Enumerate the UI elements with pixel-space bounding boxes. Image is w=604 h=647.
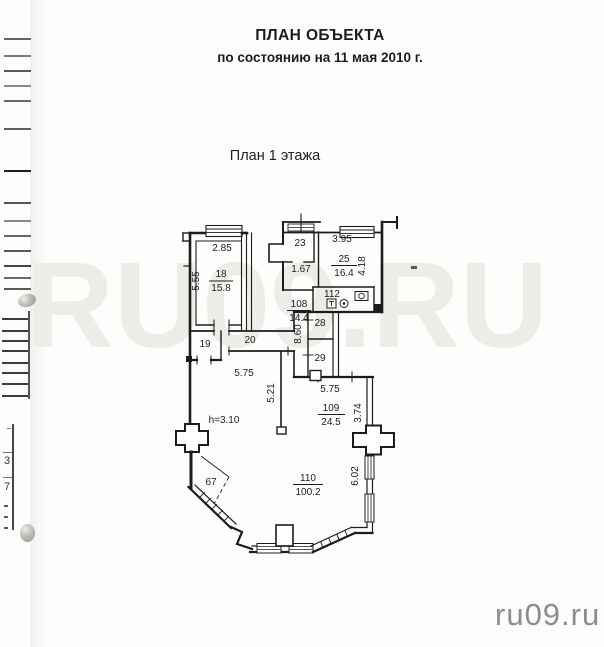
scan-blob: [20, 524, 35, 542]
margin-ruled-line: [2, 362, 28, 364]
margin-line: [4, 170, 31, 172]
margin-ruled-line: [2, 330, 28, 332]
room-18-number: 18: [215, 269, 227, 280]
margin-line: [4, 55, 31, 57]
dim-top-right-width: 3.95: [332, 234, 352, 245]
dim-corridor-height: 8.60: [293, 324, 304, 344]
room-28-number: 28: [314, 318, 326, 329]
room-110-area: 100.2: [295, 487, 320, 498]
room-108-number: 108: [291, 299, 308, 310]
margin-fragment-number: 3: [2, 455, 12, 467]
room-112-number: 112: [324, 289, 340, 300]
margin-line: [4, 288, 31, 290]
plan-labels: 2.85 5.55 18 15.8 23 1.67 3.95 25 16.4 4…: [191, 234, 368, 498]
room-108-area: 14.4: [289, 313, 309, 324]
room-109-area: 24.5: [321, 417, 341, 428]
margin-ruled-line: [2, 350, 28, 352]
dim-mid-height: 3.74: [353, 403, 364, 423]
margin-line: [4, 202, 31, 204]
dim-top-left-height: 5.55: [191, 271, 202, 291]
page-title: ПЛАН ОБЪЕКТА: [160, 27, 480, 45]
dim-top-right-height: 4.18: [357, 256, 368, 276]
margin-fragment-dash: [4, 516, 8, 518]
margin-ruled-edge: [28, 311, 30, 399]
margin-line: [4, 38, 31, 40]
margin-fragment-tick: [7, 428, 11, 429]
margin-line: [4, 265, 31, 267]
floor-plan-drawing: 2.85 5.55 18 15.8 23 1.67 3.95 25 16.4 4…: [165, 198, 415, 578]
room-25-number: 25: [338, 254, 350, 265]
dim-corridor-width: 5.75: [234, 368, 254, 379]
margin-fragment-tick: [3, 477, 12, 478]
floor-plan-title: План 1 этажа: [130, 148, 420, 164]
margin-ruled-line: [2, 383, 28, 385]
margin-ruled-line: [2, 340, 28, 342]
dim-mid-width: 5.75: [320, 384, 340, 395]
watermark-corner: ru09.ru: [495, 597, 600, 633]
margin-line: [4, 220, 31, 222]
margin-line: [4, 235, 31, 237]
room-110-number: 110: [300, 473, 316, 484]
dim-hall-height: 5.21: [266, 383, 277, 403]
dim-top-left-width: 2.85: [212, 243, 232, 254]
room-23-number: 23: [294, 238, 306, 249]
margin-ruled-line: [2, 395, 28, 397]
margin-ruled-line: [2, 318, 28, 320]
margin-fragment-dash: [4, 505, 8, 507]
room-25-area: 16.4: [334, 268, 354, 279]
dim-hall-width: 1.67: [291, 264, 311, 275]
ceiling-height-note: h=3.10: [209, 415, 240, 426]
margin-line: [4, 250, 31, 252]
margin-ruled-line: [2, 372, 28, 374]
margin-line: [4, 70, 31, 72]
dim-right-height: 6.02: [350, 466, 361, 486]
room-109-number: 109: [323, 403, 340, 414]
room-19-number: 19: [199, 339, 211, 350]
margin-fragment-edge: [12, 424, 14, 530]
margin-line: [4, 85, 31, 87]
room-20-number: 20: [244, 335, 256, 346]
room-29-number: 29: [314, 353, 326, 364]
margin-line: [4, 128, 31, 130]
margin-line: [4, 277, 31, 279]
margin-line: [4, 100, 31, 102]
margin-fragment-number: 7: [2, 481, 12, 493]
margin-fragment-tick: [3, 452, 12, 453]
margin-fragment-dash: [4, 527, 8, 529]
room-67-number: 67: [205, 477, 217, 488]
page-subtitle: по состоянию на 11 мая 2010 г.: [160, 50, 480, 65]
room-18-area: 15.8: [211, 283, 231, 294]
